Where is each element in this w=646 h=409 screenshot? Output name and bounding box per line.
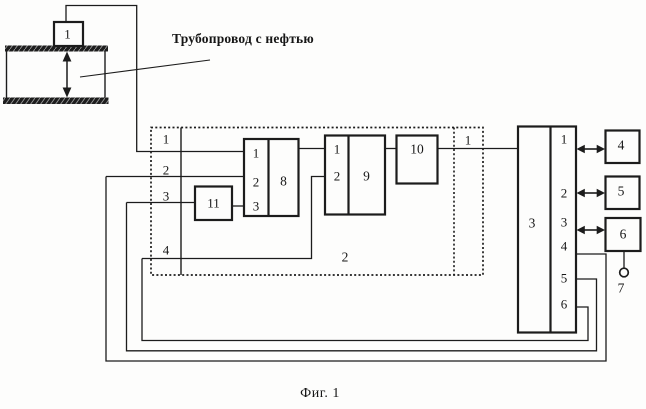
block3-port3-label: 3 <box>561 216 568 229</box>
figure-caption: Фиг. 1 <box>300 386 340 402</box>
block3-label: 3 <box>529 216 536 230</box>
block8-port3-label: 3 <box>253 199 260 212</box>
arrow-block3-block4 <box>577 145 606 153</box>
pipeline-annotation: Трубопровод с нефтью <box>172 31 314 47</box>
block6-label: 6 <box>620 227 627 241</box>
pipe-bottom-wall <box>3 98 109 105</box>
block11-label: 11 <box>207 197 220 210</box>
unit2-port3-label: 3 <box>163 190 170 203</box>
block9-port2-label: 2 <box>334 170 341 183</box>
block8-port2-label: 2 <box>253 176 260 189</box>
unit2-right-port-label: 1 <box>465 134 472 147</box>
unit2-port1-label: 1 <box>163 133 170 146</box>
block9-port1-label: 1 <box>334 143 341 156</box>
block10-label: 10 <box>410 142 424 156</box>
terminal7-circle <box>620 268 629 277</box>
block9-label: 9 <box>363 169 370 183</box>
diagram-blocks <box>195 127 641 333</box>
pipeline-leader-line <box>80 60 210 77</box>
arrow-block3-block6 <box>577 226 606 234</box>
terminal7-label: 7 <box>618 281 625 295</box>
bidirectional-arrows <box>577 145 606 234</box>
block8-port1-label: 1 <box>253 147 260 160</box>
sensor-to-unit2-line <box>66 6 244 152</box>
sensor-box-label: 1 <box>64 28 71 41</box>
diagram-linework <box>0 0 646 409</box>
block3-port4-label: 4 <box>561 240 568 253</box>
block5-label: 5 <box>618 184 625 198</box>
block8-label: 8 <box>280 174 287 188</box>
unit2-label: 2 <box>342 250 349 264</box>
block4-label: 4 <box>618 138 625 152</box>
block3-port1-label: 1 <box>561 133 568 146</box>
arrow-block3-block5 <box>577 189 606 197</box>
block3-port6-label: 6 <box>561 298 568 311</box>
block3-port2-label: 2 <box>561 187 568 200</box>
unit2-port2-label: 2 <box>163 164 170 177</box>
figure-canvas: 1 Трубопровод с нефтью 1 2 3 4 1 2 11 1 … <box>0 0 646 409</box>
pipe-level-arrow <box>63 52 72 98</box>
unit2-port4-label: 4 <box>163 244 170 257</box>
block3-port5-label: 5 <box>561 272 568 285</box>
